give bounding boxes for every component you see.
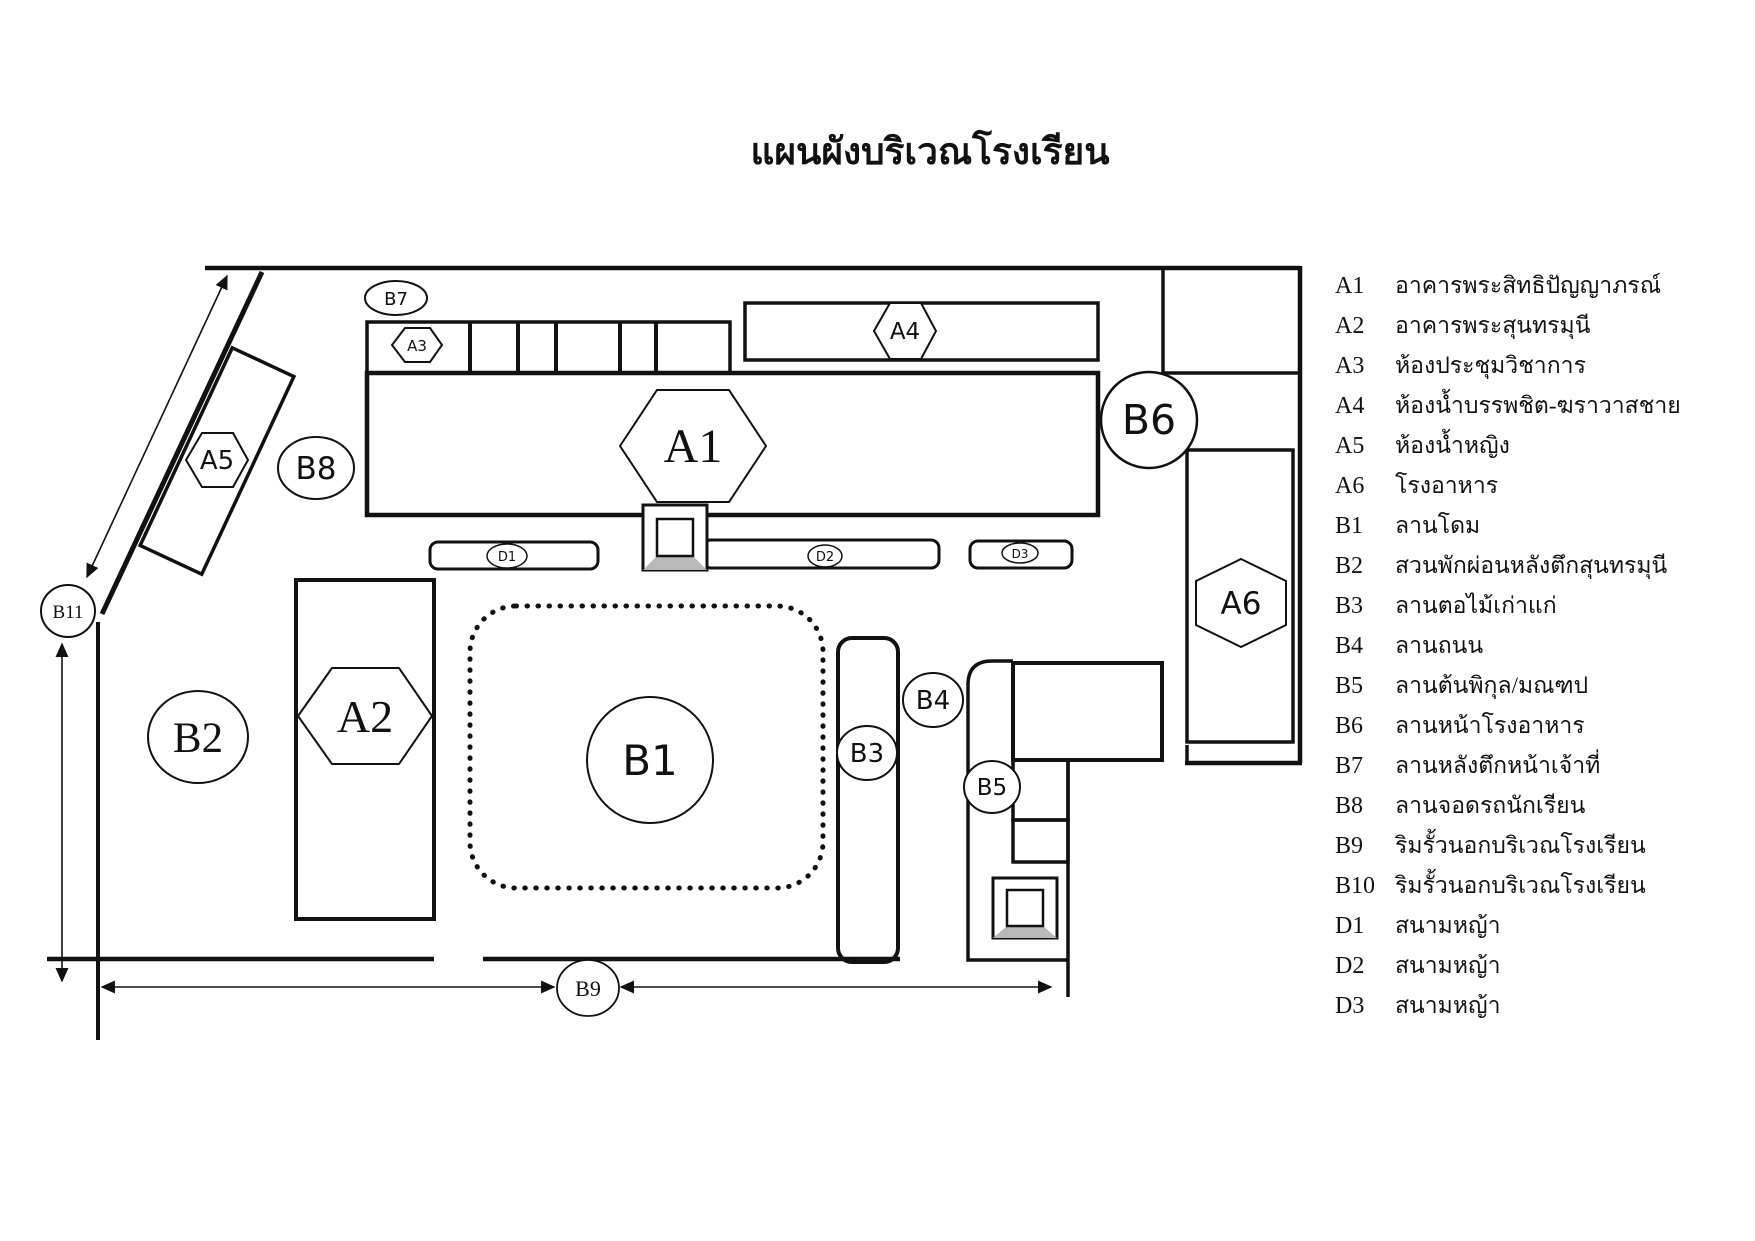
label-a5: A5 bbox=[200, 446, 234, 476]
legend-label: ริมรั้วนอกบริเวณโรงเรียน bbox=[1395, 828, 1646, 864]
legend-code: B5 bbox=[1335, 673, 1395, 700]
label-b3: B3 bbox=[850, 739, 884, 769]
legend-label: ริมรั้วนอกบริเวณโรงเรียน bbox=[1395, 868, 1646, 904]
label-a1: A1 bbox=[664, 420, 723, 473]
legend-row: A5ห้องน้ำหญิง bbox=[1335, 426, 1755, 466]
right-step-1 bbox=[1013, 760, 1068, 820]
legend-code: D1 bbox=[1335, 913, 1395, 940]
legend-label: ลานตอไม้เก่าแก่ bbox=[1395, 588, 1557, 624]
legend-label: ห้องน้ำหญิง bbox=[1395, 428, 1510, 464]
legend-label: ลานโดม bbox=[1395, 508, 1480, 544]
legend-row: B5ลานต้นพิกุล/มณฑป bbox=[1335, 666, 1755, 706]
legend-label: ลานต้นพิกุล/มณฑป bbox=[1395, 668, 1588, 704]
label-a4: A4 bbox=[890, 319, 920, 345]
legend-code: B10 bbox=[1335, 873, 1395, 900]
legend-row: B1ลานโดม bbox=[1335, 506, 1755, 546]
legend-row: B10ริมรั้วนอกบริเวณโรงเรียน bbox=[1335, 866, 1755, 906]
label-b1: B1 bbox=[622, 736, 678, 785]
legend-code: A1 bbox=[1335, 273, 1395, 300]
legend-code: A3 bbox=[1335, 353, 1395, 380]
legend-row: B6ลานหน้าโรงอาหาร bbox=[1335, 706, 1755, 746]
map-boundary bbox=[47, 266, 1302, 1040]
legend-label: สนามหญ้า bbox=[1395, 948, 1501, 984]
legend: A1อาคารพระสิทธิปัญญาภรณ์ A2อาคารพระสุนทร… bbox=[1335, 266, 1755, 1026]
legend-code: A2 bbox=[1335, 313, 1395, 340]
legend-code: B1 bbox=[1335, 513, 1395, 540]
label-d1: D1 bbox=[498, 550, 516, 565]
legend-code: A5 bbox=[1335, 433, 1395, 460]
legend-row: D2สนามหญ้า bbox=[1335, 946, 1755, 986]
legend-row: D1สนามหญ้า bbox=[1335, 906, 1755, 946]
legend-row: B2สวนพักผ่อนหลังตึกสุนทรมุนี bbox=[1335, 546, 1755, 586]
legend-row: B7ลานหลังตึกหน้าเจ้าที่ bbox=[1335, 746, 1755, 786]
fence-dimension-arrow bbox=[87, 276, 227, 577]
label-d2: D2 bbox=[816, 550, 834, 565]
label-b9: B9 bbox=[575, 976, 601, 1001]
legend-label: ลานจอดรถนักเรียน bbox=[1395, 788, 1585, 824]
legend-row: A4ห้องน้ำบรรพชิต-ฆราวาสชาย bbox=[1335, 386, 1755, 426]
label-a3: A3 bbox=[407, 337, 427, 355]
dome-structure bbox=[643, 505, 707, 570]
right-step-2 bbox=[1013, 820, 1068, 862]
legend-row: B4ลานถนน bbox=[1335, 626, 1755, 666]
legend-label: ลานหน้าโรงอาหาร bbox=[1395, 708, 1585, 744]
building-right-block bbox=[1013, 663, 1162, 760]
legend-label: โรงอาหาร bbox=[1395, 468, 1498, 504]
legend-row: A2อาคารพระสุนทรมุนี bbox=[1335, 306, 1755, 346]
legend-code: B6 bbox=[1335, 713, 1395, 740]
legend-code: B4 bbox=[1335, 633, 1395, 660]
legend-code: B9 bbox=[1335, 833, 1395, 860]
legend-code: D3 bbox=[1335, 993, 1395, 1020]
legend-code: B2 bbox=[1335, 553, 1395, 580]
label-d3: D3 bbox=[1012, 547, 1029, 561]
legend-row: B8ลานจอดรถนักเรียน bbox=[1335, 786, 1755, 826]
label-b4: B4 bbox=[916, 686, 950, 716]
label-a2: A2 bbox=[337, 691, 393, 742]
legend-row: B3ลานตอไม้เก่าแก่ bbox=[1335, 586, 1755, 626]
label-b7: B7 bbox=[384, 289, 408, 310]
legend-row: B9ริมรั้วนอกบริเวณโรงเรียน bbox=[1335, 826, 1755, 866]
legend-code: B3 bbox=[1335, 593, 1395, 620]
legend-label: อาคารพระสิทธิปัญญาภรณ์ bbox=[1395, 268, 1661, 304]
legend-label: ห้องประชุมวิชาการ bbox=[1395, 348, 1586, 384]
legend-row: A3ห้องประชุมวิชาการ bbox=[1335, 346, 1755, 386]
legend-label: อาคารพระสุนทรมุนี bbox=[1395, 308, 1590, 344]
legend-code: B8 bbox=[1335, 793, 1395, 820]
legend-row: A1อาคารพระสิทธิปัญญาภรณ์ bbox=[1335, 266, 1755, 306]
walkway-b3 bbox=[838, 638, 898, 962]
legend-code: D2 bbox=[1335, 953, 1395, 980]
label-b8: B8 bbox=[296, 451, 337, 487]
legend-code: B7 bbox=[1335, 753, 1395, 780]
legend-code: A6 bbox=[1335, 473, 1395, 500]
label-b2: B2 bbox=[173, 715, 223, 762]
label-b6: B6 bbox=[1122, 396, 1176, 444]
legend-row: D3สนามหญ้า bbox=[1335, 986, 1755, 1026]
legend-label: สนามหญ้า bbox=[1395, 908, 1501, 944]
legend-row: A6โรงอาหาร bbox=[1335, 466, 1755, 506]
label-a6: A6 bbox=[1221, 586, 1262, 622]
legend-label: สวนพักผ่อนหลังตึกสุนทรมุนี bbox=[1395, 548, 1667, 584]
mondop-structure bbox=[993, 878, 1057, 938]
legend-label: ลานถนน bbox=[1395, 628, 1483, 664]
label-b5: B5 bbox=[977, 775, 1007, 801]
legend-label: ลานหลังตึกหน้าเจ้าที่ bbox=[1395, 748, 1600, 784]
label-b11: B11 bbox=[53, 602, 84, 623]
legend-label: สนามหญ้า bbox=[1395, 988, 1501, 1024]
building-topright bbox=[1163, 268, 1300, 373]
legend-code: A4 bbox=[1335, 393, 1395, 420]
legend-label: ห้องน้ำบรรพชิต-ฆราวาสชาย bbox=[1395, 388, 1681, 424]
